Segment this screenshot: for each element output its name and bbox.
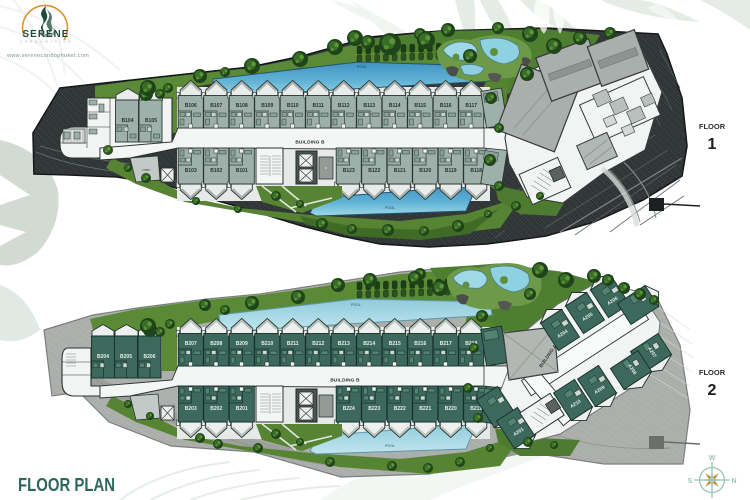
svg-text:B117: B117 (465, 103, 477, 109)
svg-text:1: 1 (708, 136, 717, 153)
svg-text:B221: B221 (419, 406, 431, 412)
svg-text:B112: B112 (338, 103, 350, 109)
svg-text:B210: B210 (261, 341, 273, 347)
svg-text:B109: B109 (261, 103, 273, 109)
svg-text:SERENE: SERENE (23, 29, 70, 40)
svg-text:FLOOR PLAN: FLOOR PLAN (18, 475, 115, 495)
svg-text:B206: B206 (144, 354, 156, 360)
svg-text:B202: B202 (210, 406, 222, 412)
svg-text:S: S (688, 478, 693, 485)
svg-text:B103: B103 (185, 168, 197, 174)
svg-text:POOL: POOL (385, 206, 395, 210)
svg-text:B203: B203 (185, 406, 197, 412)
svg-text:B102: B102 (210, 168, 222, 174)
svg-text:W: W (709, 455, 716, 462)
svg-text:B114: B114 (389, 103, 401, 109)
svg-text:B212: B212 (312, 341, 324, 347)
svg-text:B120: B120 (419, 168, 431, 174)
svg-text:LOBBY: LOBBY (142, 168, 151, 172)
svg-text:N: N (731, 478, 736, 485)
svg-text:B107: B107 (210, 103, 222, 109)
svg-text:B214: B214 (363, 341, 375, 347)
svg-text:B111: B111 (313, 103, 325, 109)
svg-text:B104: B104 (122, 118, 134, 124)
svg-text:B205: B205 (120, 354, 132, 360)
svg-text:B217: B217 (440, 341, 452, 347)
svg-text:B116: B116 (440, 103, 452, 109)
svg-text:B215: B215 (389, 341, 401, 347)
svg-text:FLOOR: FLOOR (699, 368, 726, 377)
svg-text:FLOOR: FLOOR (699, 122, 726, 131)
svg-text:B113: B113 (363, 103, 375, 109)
svg-text:B122: B122 (368, 168, 380, 174)
svg-text:B223: B223 (368, 406, 380, 412)
svg-text:B123: B123 (343, 168, 355, 174)
svg-text:B201: B201 (236, 406, 248, 412)
svg-text:B207: B207 (185, 341, 197, 347)
svg-text:B110: B110 (287, 103, 299, 109)
svg-text:B121: B121 (394, 168, 406, 174)
svg-text:B222: B222 (394, 406, 406, 412)
svg-text:B108: B108 (236, 103, 248, 109)
svg-text:B101: B101 (236, 168, 248, 174)
svg-text:B208: B208 (210, 341, 222, 347)
svg-text:POOL: POOL (357, 65, 367, 69)
svg-text:www.serenecondophuket.com: www.serenecondophuket.com (6, 53, 89, 59)
svg-text:B106: B106 (185, 103, 197, 109)
svg-text:B119: B119 (445, 168, 457, 174)
svg-text:B115: B115 (414, 103, 426, 109)
svg-text:POOL: POOL (385, 444, 395, 448)
svg-text:B204: B204 (97, 354, 109, 360)
svg-text:B216: B216 (414, 341, 426, 347)
svg-text:B213: B213 (338, 341, 350, 347)
svg-text:2: 2 (708, 382, 717, 399)
svg-text:B118: B118 (470, 168, 482, 174)
svg-text:B105: B105 (145, 118, 157, 124)
svg-text:B220: B220 (445, 406, 457, 412)
svg-text:B211: B211 (287, 341, 299, 347)
svg-text:B209: B209 (236, 341, 248, 347)
svg-text:BUILDING B: BUILDING B (295, 140, 325, 145)
svg-text:BUILDING B: BUILDING B (330, 378, 360, 383)
svg-text:M: M (325, 167, 327, 170)
svg-text:POOL: POOL (351, 303, 361, 307)
svg-text:B224: B224 (343, 406, 355, 412)
svg-text:C O N D O M I N I U M: C O N D O M I N I U M (20, 40, 72, 44)
